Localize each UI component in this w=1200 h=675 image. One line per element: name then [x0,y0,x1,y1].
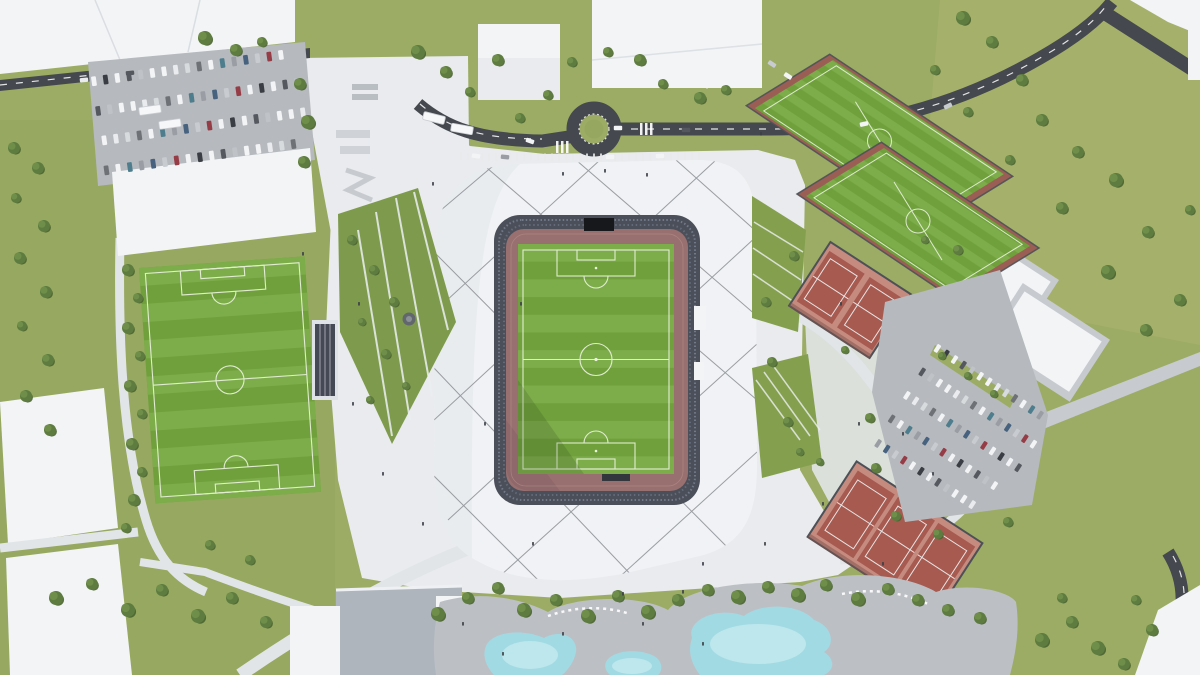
crosswalk-bar [566,141,569,153]
stairs [352,94,378,100]
scoreboard-south [602,473,630,481]
person-dot [520,302,522,306]
person-dot [604,169,606,173]
pool-highlight [612,658,652,674]
person-dot [682,590,684,594]
person-dot [432,182,434,186]
person-dot [562,172,564,176]
penalty-spot [595,267,598,270]
building-north-a-roof [478,24,560,58]
west-stand [312,320,338,400]
stripe-band [518,315,674,333]
car [656,154,665,159]
person-dot [702,642,704,646]
car [682,128,690,132]
crosswalk-bar [650,123,653,135]
person-dot [822,502,824,506]
ramp [336,130,370,138]
person-dot [702,562,704,566]
penalty-spot [595,450,598,453]
stripe-band [518,386,674,404]
person-dot [646,173,648,177]
person-dot [358,302,360,306]
person-dot [642,622,644,626]
stand-entrance-block [694,306,706,330]
pool-highlight [502,641,558,669]
person-dot [902,432,904,436]
person-dot [858,422,860,426]
stairs [352,84,378,90]
car [606,155,614,159]
person-dot [462,622,464,626]
pool-building [290,606,340,675]
crosswalk-bar [645,123,648,135]
fountain-center [406,316,412,322]
building-east-edge [1188,20,1200,80]
car [614,126,622,130]
person-dot [760,132,762,136]
pool-highlight [710,624,806,664]
person-dot [532,542,534,546]
person-dot [484,422,486,426]
person-dot [622,592,624,596]
person-dot [382,472,384,476]
center-spot [594,358,597,361]
car [126,70,135,75]
crosswalk-bar [640,123,643,135]
building-southwest-b [6,544,132,675]
stadium [434,160,757,586]
person-dot [932,472,934,476]
roundabout-island [585,120,604,139]
stadium-masterplan-svg [0,0,1200,675]
car [501,154,510,159]
aerial-render [0,0,1200,675]
person-dot [352,402,354,406]
person-dot [302,252,304,256]
car [80,77,89,82]
stripe-band [518,244,674,262]
ramp [340,146,370,154]
crosswalk-bar [556,141,559,153]
building-southwest-a [0,388,118,544]
person-dot [840,302,842,306]
person-dot [502,652,504,656]
training-pitch-west [139,256,321,503]
crosswalk-bar [561,141,564,153]
person-dot [882,562,884,566]
scoreboard-north [584,218,614,231]
person-dot [764,542,766,546]
person-dot [422,522,424,526]
stand-entrance-block [694,362,704,380]
person-dot [562,632,564,636]
